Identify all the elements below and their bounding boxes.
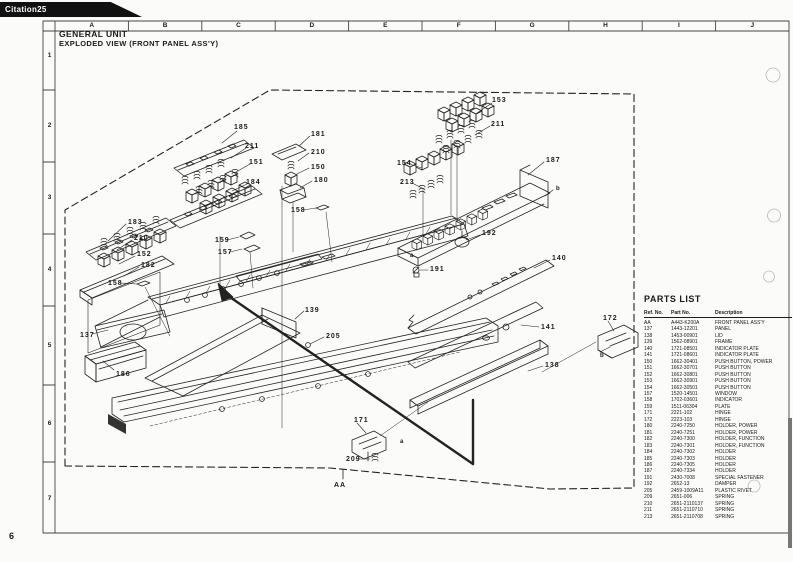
callout-label-210: 210 [134,235,149,242]
parts-header-part: Part No. [671,310,715,318]
callout-label-211: 211 [245,143,259,150]
callout-label-192: 192 [482,230,497,237]
parts-list-title: PARTS LIST [644,294,792,304]
grid-column-label: J [742,21,762,31]
callout-label-138: 138 [545,362,560,369]
manual-tab-label: Citation25 [5,5,47,14]
callout-label-172: 172 [603,315,618,322]
callout-label-185: 185 [234,124,249,131]
part-159-plate-chip [240,232,255,239]
parts-header-ref: Ref. No. [644,310,671,318]
grid-row-label: 4 [44,266,55,274]
part-154-buttons [404,141,464,175]
parts-list-header: Ref. No. Part No. Description [644,310,792,318]
callout-label-AA: AA [334,482,346,489]
grid-row-label: 7 [44,495,55,503]
grid-row-label: 6 [44,420,55,428]
parts-cell-desc: SPRING [715,514,792,520]
part-213-springs [410,175,443,198]
callout-label-b: b [556,186,560,193]
callout-label-139: 139 [305,307,320,314]
part-181-holder [272,144,306,160]
part-157-window-chip [244,245,260,252]
callout-label-141: 141 [541,324,556,331]
callout-label-205: 205 [326,333,341,340]
callout-label-184: 184 [246,179,261,186]
drawing-title-line2: EXPLODED VIEW (FRONT PANEL ASS'Y) [59,39,218,48]
callout-label-140: 140 [552,255,567,262]
part-187-holder [398,165,550,266]
part-172-hinge [598,325,638,358]
callout-label-150: 150 [311,164,326,171]
alignment-lines [145,140,596,436]
part-front-tray [108,318,498,434]
assembly-boundary [65,90,634,489]
callout-label-213: 213 [400,179,415,186]
parts-cell-ref: 213 [644,514,671,520]
grid-row-label: 1 [44,52,55,60]
grid-column-label: C [229,21,249,31]
part-211-springs-right [436,120,482,153]
callout-label-210: 210 [311,149,326,156]
parts-header-desc: Description [715,310,792,318]
drawing-title: GENERAL UNIT EXPLODED VIEW (FRONT PANEL … [59,29,218,48]
assembly-arrow [218,283,473,464]
grid-row-label: 5 [44,342,55,350]
callout-label-183: 183 [128,219,143,226]
grid-column-label: D [302,21,322,31]
grid-row-label: 3 [44,194,55,202]
callout-label-b: b [600,353,604,360]
callout-label-137: 137 [80,332,95,339]
callout-label-154: 154 [397,160,412,167]
page-number: 6 [9,531,14,541]
part-158-indicator-left [137,281,150,286]
callout-label-211: 211 [491,121,505,128]
callout-label-158: 158 [108,280,123,287]
parts-cell-part: 2651-2110708 [671,514,715,520]
callout-label-209: 209 [346,456,361,463]
part-184-holder [170,186,262,228]
callout-label-a: a [410,253,413,260]
parts-row: 2132651-2110708SPRING [644,514,792,520]
callout-label-186: 186 [116,371,131,378]
callout-label-151: 151 [249,159,264,166]
grid-row-label: 2 [44,122,55,130]
callout-label-157: 157 [218,249,233,256]
grid-column-label: B [155,21,175,31]
callout-label-152: 152 [137,251,152,258]
grid-column-label: I [669,21,689,31]
callout-label-159: 159 [215,237,230,244]
parts-list-rows: AAA443-K200AFRONT PANEL ASS'Y1371443-122… [644,320,792,520]
callout-label-191: 191 [430,266,445,273]
part-191-fastener [413,267,419,277]
service-manual-page: Citation25 GENERAL UNIT EXPLODED VIEW (F… [0,0,793,562]
callout-label-180: 180 [314,177,329,184]
part-185-holder [174,140,254,176]
grid-column-label: A [82,21,102,31]
callout-label-187: 187 [546,157,561,164]
part-153-buttons [438,92,494,132]
grid-column-label: H [596,21,616,31]
callout-label-a: a [400,439,403,446]
part-210-spring-right [288,161,294,169]
callout-label-181: 181 [311,131,326,138]
callout-label-171: 171 [354,417,369,424]
part-158-indicator-center [316,205,329,210]
callout-label-158: 158 [291,207,306,214]
callout-label-153: 153 [492,97,507,104]
grid-column-label: G [522,21,542,31]
grid-column-label: F [449,21,469,31]
parts-list: PARTS LIST Ref. No. Part No. Description… [644,294,792,520]
callout-label-182: 182 [141,262,156,269]
grid-column-label: E [375,21,395,31]
